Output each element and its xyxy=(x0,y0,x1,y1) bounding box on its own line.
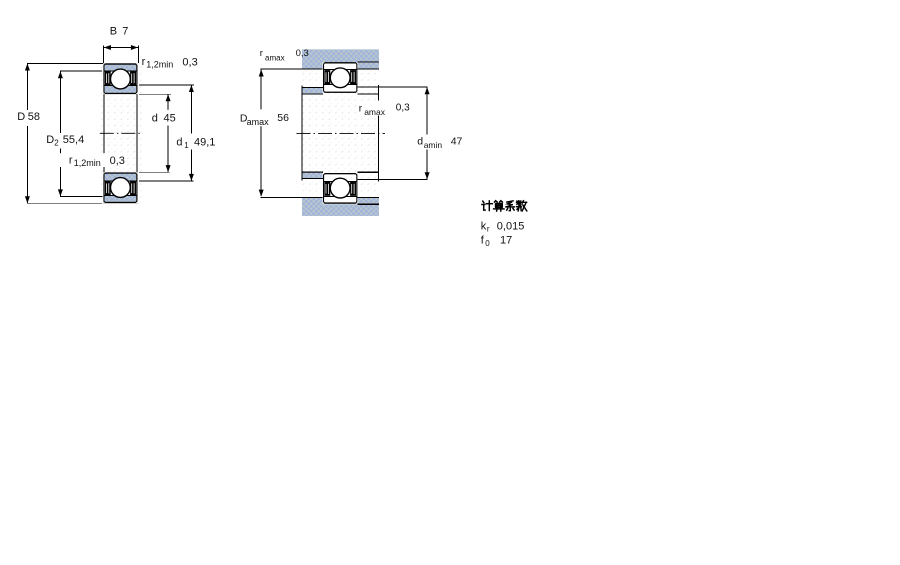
svg-text:0,015: 0,015 xyxy=(497,221,525,233)
svg-text:r: r xyxy=(142,56,146,68)
svg-text:amax: amax xyxy=(247,117,270,127)
svg-text:d: d xyxy=(176,136,182,148)
svg-text:17: 17 xyxy=(500,235,512,247)
svg-text:47: 47 xyxy=(451,136,463,148)
svg-text:1: 1 xyxy=(184,141,189,150)
svg-text:0,3: 0,3 xyxy=(396,103,410,114)
svg-text:0,3: 0,3 xyxy=(296,48,309,59)
svg-text:2: 2 xyxy=(54,139,59,148)
svg-text:k: k xyxy=(481,220,487,232)
svg-text:58: 58 xyxy=(28,111,40,123)
svg-text:r: r xyxy=(69,155,73,167)
svg-text:1,2min: 1,2min xyxy=(74,158,101,168)
svg-text:amax: amax xyxy=(265,54,285,63)
svg-text:1,2min: 1,2min xyxy=(146,60,173,70)
svg-text:0,3: 0,3 xyxy=(182,56,197,68)
svg-text:amin: amin xyxy=(424,140,443,150)
svg-text:49,1: 49,1 xyxy=(194,136,215,148)
svg-text:0: 0 xyxy=(485,239,490,248)
svg-text:d: d xyxy=(152,112,158,124)
svg-text:0,3: 0,3 xyxy=(110,155,125,167)
svg-text:amax: amax xyxy=(364,107,386,117)
svg-text:B: B xyxy=(110,25,117,37)
svg-text:D: D xyxy=(17,111,25,123)
svg-text:56: 56 xyxy=(277,112,289,124)
svg-text:d: d xyxy=(417,136,423,148)
svg-text:r: r xyxy=(260,48,263,59)
svg-text:45: 45 xyxy=(164,112,176,124)
svg-text:55,4: 55,4 xyxy=(63,134,84,146)
svg-text:r: r xyxy=(487,225,490,234)
svg-text:7: 7 xyxy=(122,25,128,37)
svg-text:D: D xyxy=(46,134,54,146)
